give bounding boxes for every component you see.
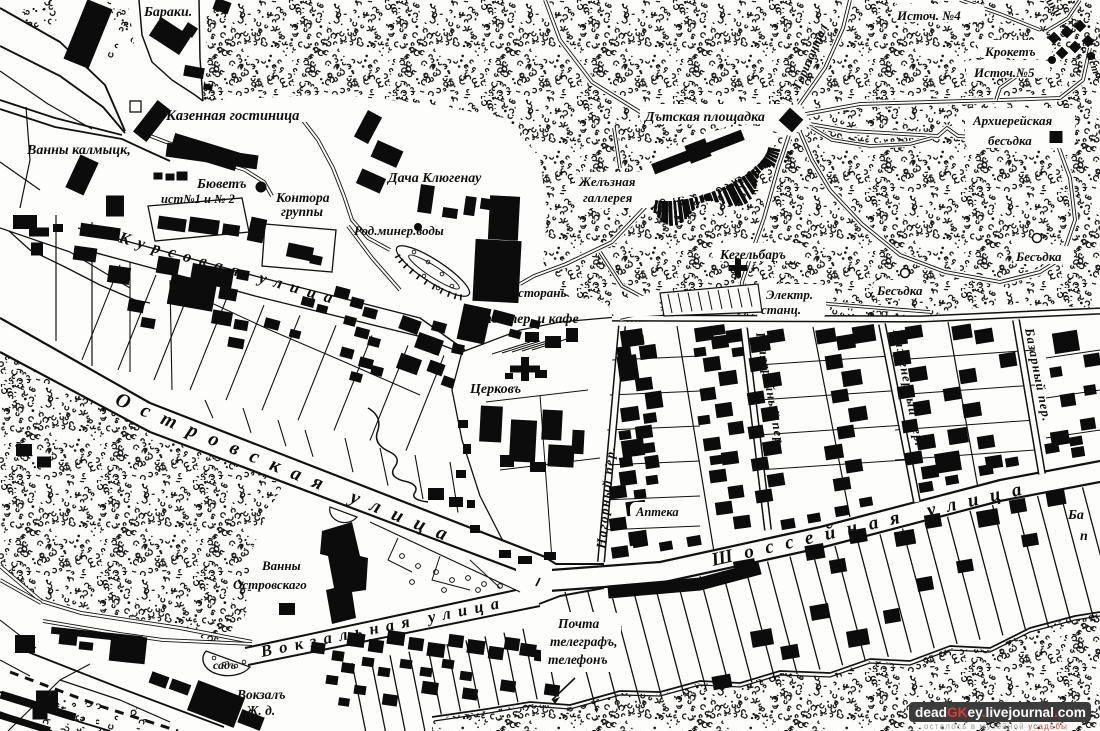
svg-text:Ванны калмыцк,: Ванны калмыцк, — [26, 143, 131, 158]
svg-text:садъ: садъ — [213, 658, 236, 672]
svg-text:Казенная гостиница: Казенная гостиница — [165, 108, 299, 124]
svg-text:Архиерейская: Архиерейская — [972, 113, 1052, 128]
svg-text:Вокзалъ: Вокзалъ — [236, 687, 285, 702]
svg-text:Источ. №4: Источ. №4 — [896, 8, 961, 23]
svg-text:Ба: Ба — [1067, 508, 1084, 523]
svg-text:Кегельбаръ: Кегельбаръ — [719, 247, 786, 262]
svg-text:телеграфъ,: телеграфъ, — [550, 634, 618, 649]
svg-text:Источ.№5: Источ.№5 — [973, 65, 1035, 80]
svg-text:станц.: станц. — [761, 302, 801, 317]
svg-text:Бесъдка: Бесъдка — [876, 283, 923, 298]
svg-text:deadGKey.livejournal.com: deadGKey.livejournal.com — [915, 705, 1086, 720]
svg-text:Электр.: Электр. — [766, 287, 813, 302]
svg-text:Островскаго: Островскаго — [233, 577, 307, 592]
svg-text:Бараки.: Бараки. — [143, 5, 192, 20]
svg-text:группы: группы — [281, 204, 323, 219]
svg-text:Дача Клюгенау: Дача Клюгенау — [386, 171, 482, 186]
svg-text:Церковъ: Церковъ — [469, 382, 521, 397]
svg-text:галлерея: галлерея — [583, 190, 633, 205]
svg-text:Ж. д.: Ж. д. — [245, 703, 275, 718]
svg-text:Аптека: Аптека — [635, 505, 679, 519]
svg-text:Бюветъ: Бюветъ — [196, 177, 247, 192]
svg-text:ист№1 и № 2: ист№1 и № 2 — [161, 192, 235, 206]
svg-text:Крокетъ: Крокетъ — [984, 44, 1036, 59]
svg-text:Желъзная: Желъзная — [578, 174, 636, 189]
svg-text:Ванны: Ванны — [261, 558, 301, 573]
svg-text:Кондитер. и кафе: Кондитер. и кафе — [467, 312, 579, 327]
svg-text:бесъдка: бесъдка — [988, 133, 1032, 148]
svg-text:Почта: Почта — [557, 616, 599, 631]
svg-text:осталось в музейной усадьбы: осталось в музейной усадьбы — [924, 722, 1068, 731]
svg-text:Род.минер.воды: Род.минер.воды — [354, 223, 444, 238]
svg-text:п: п — [1080, 529, 1088, 544]
svg-text:Бесъдка: Бесъдка — [1015, 249, 1062, 264]
svg-text:телефонъ: телефонъ — [548, 652, 608, 667]
svg-text:Контора: Контора — [275, 190, 330, 205]
svg-text:Ресторань: Ресторань — [505, 285, 566, 300]
svg-text:Дътская площадка: Дътская площадка — [643, 110, 765, 125]
